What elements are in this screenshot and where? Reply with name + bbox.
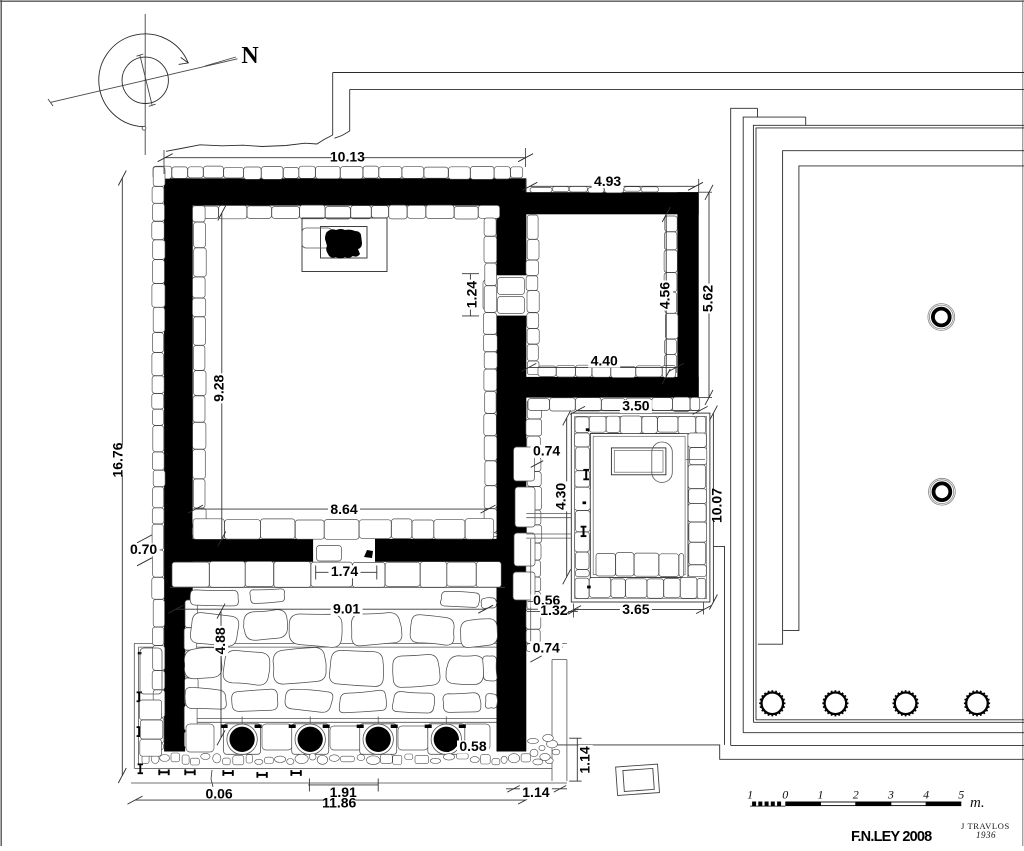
svg-text:1.14: 1.14 [522,784,549,800]
svg-text:16.76: 16.76 [110,442,126,477]
svg-text:3.50: 3.50 [622,398,649,414]
svg-text:4.40: 4.40 [591,352,618,368]
svg-text:F.N.LEY 2008: F.N.LEY 2008 [851,829,932,845]
svg-text:m.: m. [970,795,985,811]
svg-text:5: 5 [958,788,964,802]
svg-text:0.70: 0.70 [130,541,157,557]
svg-text:4.56: 4.56 [657,282,673,309]
svg-text:4: 4 [923,788,929,802]
svg-text:1936: 1936 [976,830,996,840]
svg-text:4.30: 4.30 [553,483,569,510]
svg-text:1.74: 1.74 [331,563,358,579]
svg-text:10.13: 10.13 [330,149,365,165]
svg-text:11.86: 11.86 [322,795,356,811]
svg-text:1.14: 1.14 [577,746,593,773]
svg-text:0.74: 0.74 [533,639,560,655]
svg-text:0.74: 0.74 [533,443,560,459]
svg-text:1: 1 [747,788,753,802]
svg-text:4.88: 4.88 [212,627,228,654]
svg-text:10.07: 10.07 [709,488,725,523]
svg-text:N: N [241,43,259,69]
svg-text:9.01: 9.01 [333,601,360,617]
svg-text:5.62: 5.62 [700,285,716,312]
svg-text:9.28: 9.28 [211,374,227,401]
svg-text:3.65: 3.65 [622,601,649,617]
svg-text:4.93: 4.93 [594,173,621,189]
svg-text:1.32: 1.32 [540,602,567,618]
svg-text:3: 3 [887,788,894,802]
svg-text:2: 2 [853,788,859,802]
svg-text:1: 1 [818,788,824,802]
svg-text:0.06: 0.06 [205,786,232,802]
svg-text:0.58: 0.58 [459,738,486,754]
svg-text:0: 0 [782,788,788,802]
svg-text:1.24: 1.24 [463,281,479,308]
svg-text:8.64: 8.64 [330,501,357,517]
